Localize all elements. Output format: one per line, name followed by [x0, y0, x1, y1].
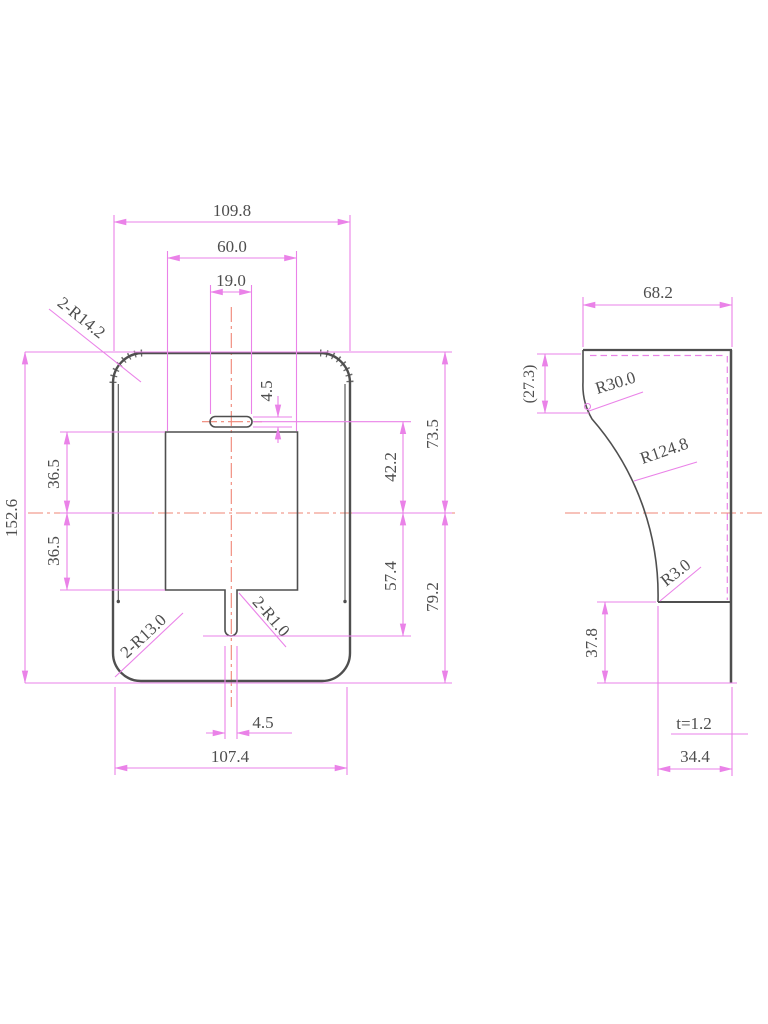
side-view: 68.2 (27.3) R30.0 R124.8 R3.0 37.8 t=1.2… [521, 283, 766, 776]
label-slot-to-axis: 42.2 [381, 452, 400, 482]
label-hole-upper-half: 36.5 [44, 459, 63, 489]
drawing-canvas: 109.8 60.0 19.0 4.5 2-R14.2 152.6 36.5 3… [0, 0, 768, 1024]
label-width-bottom: 107.4 [211, 747, 250, 766]
label-side-width: 68.2 [643, 283, 673, 302]
label-axis-to-bottom: 79.2 [423, 582, 442, 612]
bend-end-dot-left [117, 600, 120, 603]
label-width-top: 109.8 [213, 201, 251, 220]
label-slot-corner-radius: 2-R1.0 [249, 593, 294, 641]
label-corner-radius-bottom: 2-R13.0 [117, 610, 170, 662]
label-slot-bottom-width: 4.5 [252, 713, 273, 732]
cad-drawing: 109.8 60.0 19.0 4.5 2-R14.2 152.6 36.5 3… [0, 0, 768, 1024]
label-lower-flange: 37.8 [582, 628, 601, 658]
label-slot-top-length: 19.0 [216, 271, 246, 290]
front-view: 109.8 60.0 19.0 4.5 2-R14.2 152.6 36.5 3… [2, 201, 455, 775]
label-radius-main: R124.8 [638, 434, 691, 468]
label-height: 152.6 [2, 499, 21, 537]
centerlines-front [28, 307, 455, 707]
label-top-flat: (27.3) [521, 365, 538, 404]
label-radius-bottom: R3.0 [657, 555, 694, 590]
label-side-bottom-width: 34.4 [680, 747, 710, 766]
bend-end-dot-right [343, 600, 346, 603]
front-dimensions [25, 215, 452, 775]
label-axis-to-slot-bottom: 57.4 [381, 561, 400, 591]
label-radius-top: R30.0 [593, 368, 638, 398]
side-dimensions [537, 297, 748, 776]
label-thickness: t=1.2 [676, 714, 712, 733]
label-hole-lower-half: 36.5 [44, 536, 63, 566]
label-slot-top-width: 4.5 [257, 380, 276, 401]
label-hole-width: 60.0 [217, 237, 247, 256]
label-top-to-axis: 73.5 [423, 419, 442, 449]
